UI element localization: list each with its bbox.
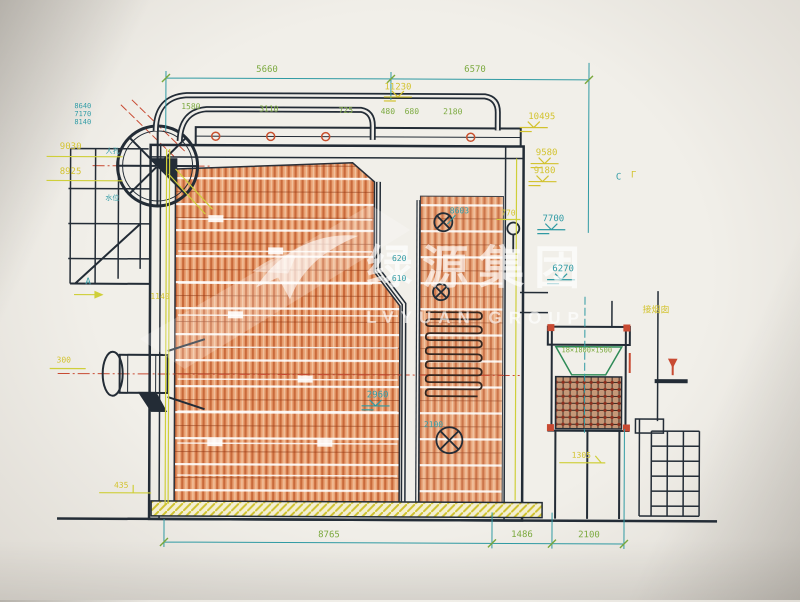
steam-drum-icon — [117, 126, 197, 206]
boiler-drawing — [0, 0, 800, 602]
steam-piping-icon — [156, 95, 498, 142]
drawing-photo: 绿源集团 LVYUAN GROUP 5660657011230158031107… — [0, 0, 800, 602]
left-platform-icon — [68, 149, 151, 284]
stairs-icon — [635, 419, 699, 516]
